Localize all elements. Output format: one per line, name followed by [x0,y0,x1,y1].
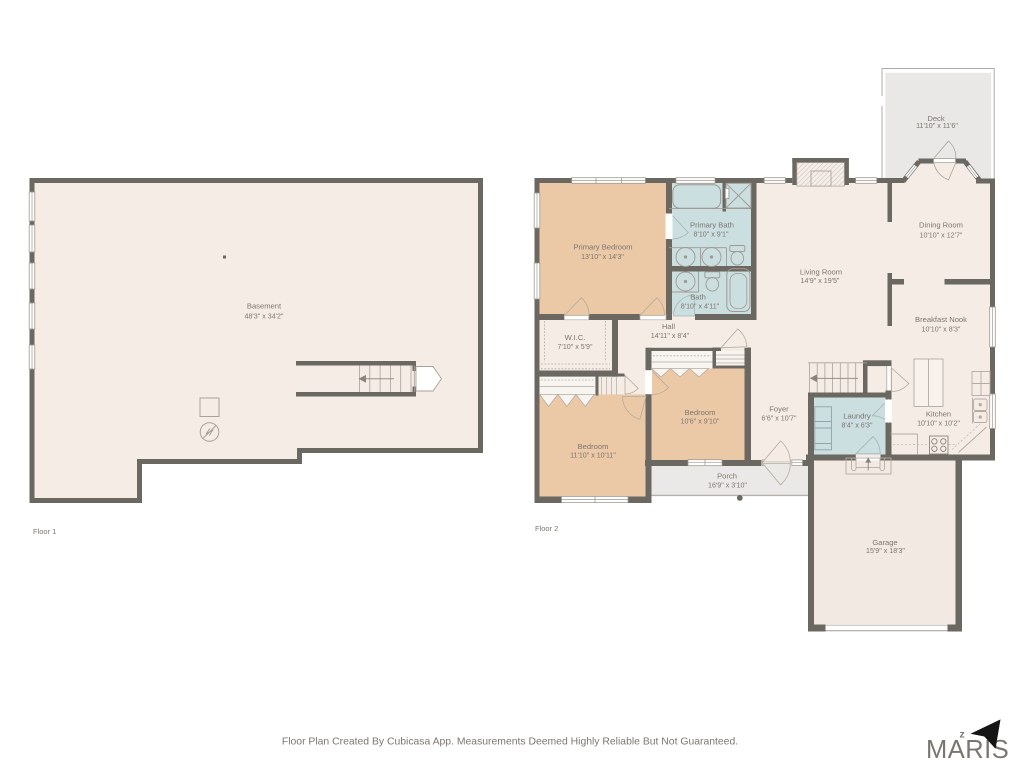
svg-text:10'10" x 12'7": 10'10" x 12'7" [920,232,963,240]
svg-text:10'10" x 10'2": 10'10" x 10'2" [917,420,960,428]
svg-text:Bedroom: Bedroom [578,442,609,451]
svg-text:Bedroom: Bedroom [685,408,716,417]
svg-text:11'10" x 11'6": 11'10" x 11'6" [916,122,958,130]
svg-text:Floor 2: Floor 2 [535,524,558,533]
svg-text:13'10" x 14'3": 13'10" x 14'3" [581,253,624,261]
svg-text:6'6" x 10'7": 6'6" x 10'7" [762,415,797,423]
svg-text:14'9" x 19'5": 14'9" x 19'5" [801,277,840,285]
svg-text:W.I.C.: W.I.C. [565,333,586,342]
svg-text:Living Room: Living Room [800,268,842,277]
svg-text:Basement: Basement [247,302,282,311]
svg-text:7'10" x 5'9": 7'10" x 5'9" [558,343,593,351]
svg-text:Hall: Hall [662,322,675,331]
svg-text:8'4" x 6'3": 8'4" x 6'3" [841,422,872,430]
svg-text:11'10" x 10'11": 11'10" x 10'11" [570,452,616,460]
svg-text:48'3" x 34'2": 48'3" x 34'2" [245,313,284,321]
svg-text:Porch: Porch [717,472,737,481]
svg-text:14'11" x 8'4": 14'11" x 8'4" [651,332,690,340]
svg-text:Foyer: Foyer [769,405,789,414]
svg-text:Dining Room: Dining Room [919,221,963,230]
svg-text:Breakfast Nook: Breakfast Nook [915,315,967,324]
svg-text:z: z [960,729,965,741]
svg-text:Floor 1: Floor 1 [33,527,56,536]
svg-text:8'10" x 9'1": 8'10" x 9'1" [694,231,729,239]
svg-text:10'10" x 8'3": 10'10" x 8'3" [922,326,961,334]
svg-text:Laundry: Laundry [843,412,871,421]
svg-text:Floor Plan Created By Cubicasa: Floor Plan Created By Cubicasa App. Meas… [282,737,738,748]
svg-text:Kitchen: Kitchen [926,410,951,419]
svg-text:Primary Bedroom: Primary Bedroom [573,243,632,252]
svg-text:8'10" x 4'11": 8'10" x 4'11" [681,303,720,311]
svg-text:16'9" x 3'10": 16'9" x 3'10" [708,482,747,490]
svg-text:10'6" x 9'10": 10'6" x 9'10" [681,418,720,426]
svg-text:Primary Bath: Primary Bath [690,221,734,230]
svg-text:Garage: Garage [872,538,897,547]
svg-text:15'9" x 18'3": 15'9" x 18'3" [866,547,905,555]
svg-text:Bath: Bath [690,293,706,302]
